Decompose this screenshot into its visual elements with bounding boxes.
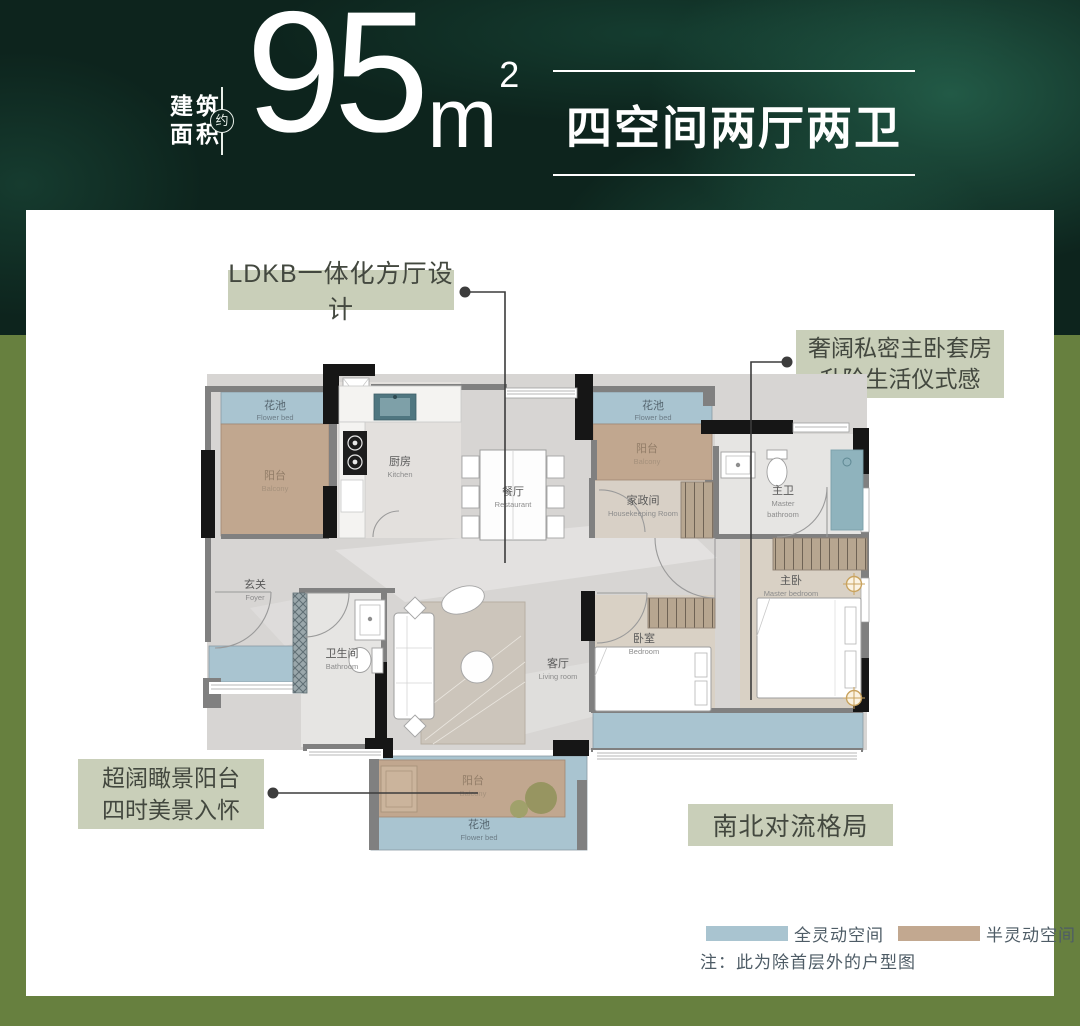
floorplan-poster: 建筑 面积 约 95 m 2 四空间两厅两卫 LDKB一体化方厅设计 奢阔私密主… [0, 0, 1080, 1026]
legend-full-flex-swatch [706, 926, 788, 941]
callout-master-line2: 升阶生活仪式感 [796, 364, 1004, 395]
callout-airflow-text: 南北对流格局 [688, 807, 893, 843]
callout-view-balcony: 超阔瞰景阳台 四时美景入怀 [78, 759, 264, 829]
callout-ldkb-text: LDKB一体化方厅设计 [228, 254, 454, 326]
layout-title: 四空间两厅两卫 [553, 70, 915, 176]
plan-card [26, 210, 1054, 996]
callout-master-line1: 奢阔私密主卧套房 [796, 333, 1004, 364]
legend: 全灵动空间 半灵动空间 [706, 921, 1076, 946]
legend-semi-flex-swatch [898, 926, 980, 941]
area-unit: m [427, 71, 497, 165]
callout-balcony-line1: 超阔瞰景阳台 [78, 762, 264, 794]
plan-note: 注：此为除首层外的户型图 [700, 948, 916, 973]
callout-master-suite: 奢阔私密主卧套房 升阶生活仪式感 [796, 330, 1004, 398]
legend-full-flex-label: 全灵动空间 [794, 921, 884, 946]
area-value: 95 [246, 0, 421, 158]
area-figure: 95 m 2 [246, 0, 497, 158]
legend-semi-flex-label: 半灵动空间 [986, 921, 1076, 946]
callout-ldkb: LDKB一体化方厅设计 [228, 270, 454, 310]
area-exponent: 2 [499, 57, 519, 93]
callout-balcony-line2: 四时美景入怀 [78, 794, 264, 826]
approx-badge: 约 [210, 109, 234, 133]
callout-airflow: 南北对流格局 [688, 804, 893, 846]
area-unit-wrap: m 2 [427, 85, 497, 152]
